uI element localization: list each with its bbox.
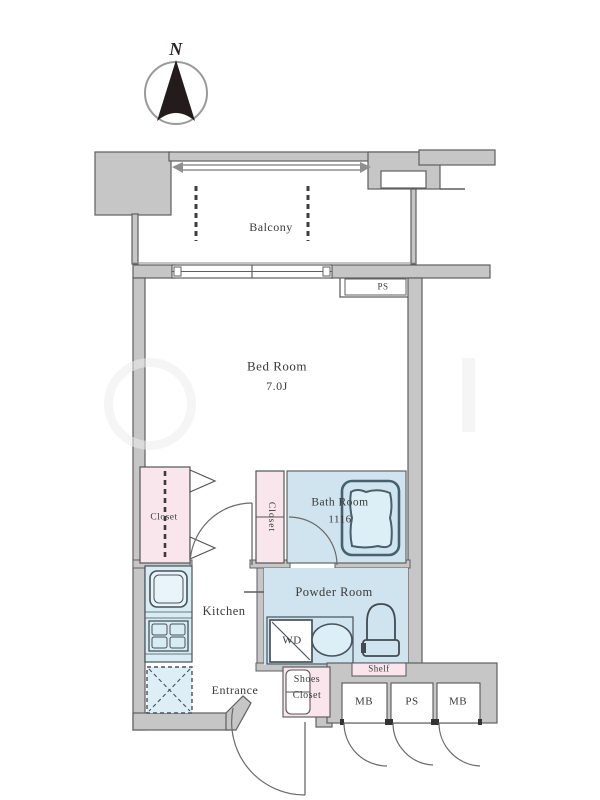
- balcony-label: Balcony: [249, 221, 293, 233]
- bedroom-door: [190, 503, 252, 565]
- closet-left-label: Closet: [150, 513, 177, 523]
- meter-box-block: [327, 663, 497, 766]
- wall-top-left-segment: [133, 265, 175, 278]
- wall-bottom: [133, 713, 228, 730]
- shoes-closet-label-line2: Closet: [293, 691, 322, 701]
- bathroom-name-label: Bath Room: [311, 497, 368, 509]
- wall-band-top-right: [419, 150, 495, 165]
- ps-bottom-label: PS: [405, 697, 418, 708]
- wall-top-right-segment: [330, 265, 490, 278]
- wall-block-top-left: [95, 152, 171, 215]
- bedroom-name-label: Bed Room: [247, 360, 307, 373]
- basin: [312, 624, 352, 656]
- closet-mid-label: Closet: [265, 502, 275, 532]
- entrance-door: [232, 708, 305, 795]
- door-arc: [190, 503, 252, 565]
- wd-label: WD: [282, 636, 301, 647]
- balcony-railing: [172, 162, 371, 173]
- ps-nook: [340, 278, 408, 297]
- meter-box-door-arcs: [344, 723, 480, 766]
- wall-entrance-chamfer: [226, 696, 251, 730]
- wall-notch: [381, 171, 426, 188]
- stove: [149, 621, 188, 651]
- ps-top-label: PS: [377, 283, 388, 292]
- wall-balcony-right: [411, 189, 416, 264]
- bedroom-window: [172, 265, 332, 278]
- door-arc: [232, 708, 305, 795]
- compass: [145, 60, 207, 124]
- balcony-walls: [95, 150, 495, 264]
- railing-arrow-left-icon: [172, 162, 183, 173]
- wall-right: [408, 278, 422, 685]
- entrance-label: Entrance: [212, 684, 259, 696]
- kitchen-sink: [150, 571, 187, 607]
- mb-right-label: MB: [449, 697, 467, 708]
- wall-kitchen-powder: [257, 568, 264, 665]
- bedroom-size-label: 7.0J: [266, 380, 288, 392]
- shoes-closet-label-line1: Shoes: [294, 675, 320, 685]
- mb-left-label: MB: [355, 697, 373, 708]
- north-label: N: [169, 40, 183, 58]
- shelf-label: Shelf: [368, 665, 390, 674]
- bathroom-size-label: 1116: [328, 515, 351, 526]
- folding-door-icon: [190, 470, 215, 492]
- fridge-space: [147, 667, 192, 713]
- powder-room-label: Powder Room: [295, 586, 372, 599]
- wall-balcony-left: [132, 214, 138, 264]
- kitchen-label: Kitchen: [202, 605, 245, 618]
- kitchen-counter: [145, 566, 192, 662]
- folding-door-icon: [190, 537, 215, 559]
- floor-plan: N Balcony PS Bed Room 7.0J Closet Closet…: [0, 0, 600, 800]
- north-arrow-icon: [157, 60, 195, 121]
- powder-room: [264, 568, 408, 665]
